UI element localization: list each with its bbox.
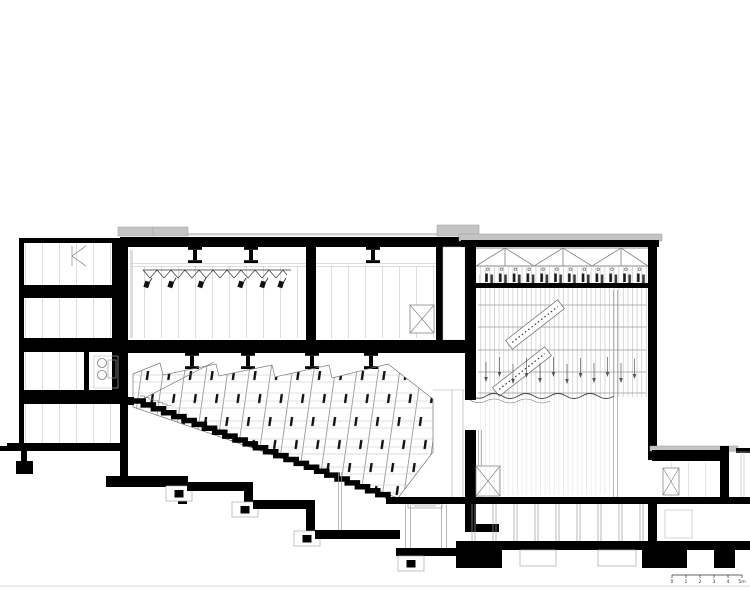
footing-pad: [520, 550, 556, 566]
steel-column: [364, 353, 378, 369]
studio-floor-slab: [121, 340, 467, 353]
roof-trusses: [476, 248, 648, 266]
scale-label: 2: [699, 579, 702, 585]
fly-tower: [459, 234, 662, 497]
orchestra-pit: [396, 500, 458, 571]
studio-right-wall: [436, 247, 443, 340]
basement-floor: [253, 500, 315, 509]
grid-floor: [476, 283, 648, 288]
stage-floor-slab: [386, 497, 750, 504]
left-wing-roof-slab: [19, 238, 118, 243]
foundation-pier: [714, 548, 735, 568]
foundation-block: [456, 541, 502, 568]
understage-columns: [462, 504, 648, 542]
pit-floor: [396, 548, 458, 556]
fly-lines-lower: [478, 397, 614, 495]
technical-shaft: [443, 247, 465, 340]
steel-column: [305, 353, 319, 369]
steel-column: [241, 353, 255, 369]
steel-column: [188, 247, 202, 263]
hall-left-wall: [120, 237, 128, 478]
footing-pad: [398, 556, 424, 571]
foundation-pier: [642, 550, 687, 568]
tower-parapet: [459, 234, 662, 241]
scale-label: 3: [713, 579, 716, 585]
basement-floor: [187, 482, 253, 491]
main-roof: [118, 225, 479, 247]
stage-front-lines: [433, 390, 470, 497]
left-wing-block: [0, 238, 122, 474]
understage: [456, 497, 750, 568]
left-exterior-wall: [19, 238, 24, 451]
scale-bar: 0 1 2 3 4 5m: [671, 575, 747, 585]
tower-right-wall: [648, 240, 657, 460]
scale-label: 5m: [738, 579, 746, 585]
steel-column: [366, 247, 380, 263]
scale-label: 1: [685, 579, 688, 585]
architectural-section-drawing: 0 1 2 3 4 5m: [0, 0, 750, 590]
cross-braced-panel: [410, 305, 434, 333]
basement-floor: [106, 476, 188, 487]
scale-label: 4: [727, 579, 730, 585]
understage-divider-wall: [648, 497, 657, 543]
pulley-blocks: [479, 267, 647, 283]
tower-roof-slab: [461, 240, 659, 247]
scale-label: 0: [671, 579, 674, 585]
left-wing-foundation: [0, 443, 122, 474]
floor-slab: [23, 390, 118, 404]
main-roof-slab: [121, 237, 467, 247]
annex-right-wall: [720, 446, 729, 497]
left-wing-inner-wall: [112, 238, 120, 404]
floor-slab: [23, 285, 118, 298]
floor-slab: [23, 338, 118, 352]
right-annex: [650, 446, 750, 538]
section-canvas: 0 1 2 3 4 5m: [0, 0, 750, 590]
steel-column: [244, 247, 258, 263]
steel-column: [185, 353, 199, 369]
tower-left-wall: [465, 240, 476, 400]
basement-floor: [315, 530, 400, 539]
pit-lift-guides: [406, 505, 447, 548]
sheet-edge-line: [0, 585, 750, 587]
footing-pad: [598, 550, 636, 566]
central-column: [306, 247, 316, 340]
annex-basement-room: [665, 510, 692, 538]
studio-level: [130, 247, 465, 340]
annex-roof-slab: [652, 450, 728, 461]
annex-door: [663, 468, 679, 495]
